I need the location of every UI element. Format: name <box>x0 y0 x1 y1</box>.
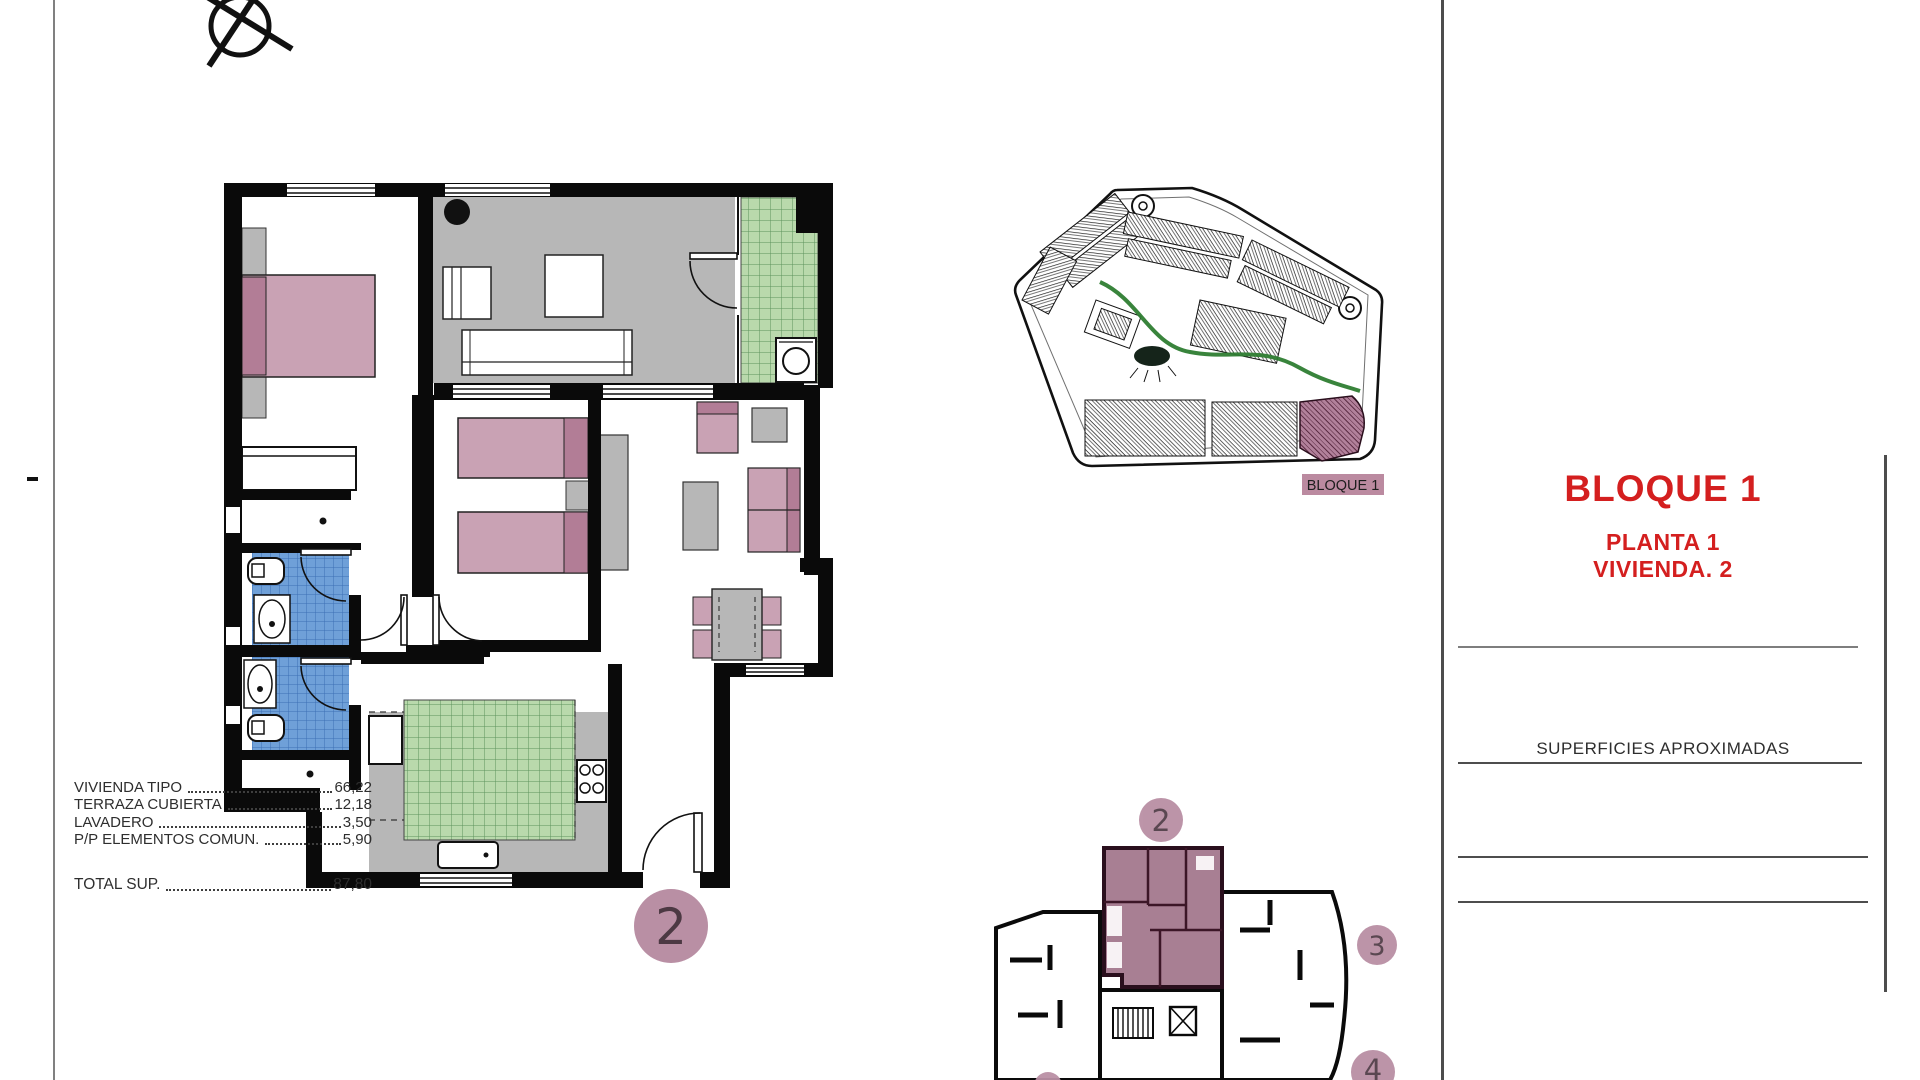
svg-text:3: 3 <box>1368 931 1385 962</box>
surface-value: 5,90 <box>343 831 372 848</box>
living-cabinet <box>600 435 628 570</box>
edge-tick <box>27 477 38 481</box>
highlighted-block <box>1300 396 1364 461</box>
surface-label: P/P ELEMENTOS COMUN. <box>74 831 259 848</box>
svg-text:2: 2 <box>1151 804 1170 839</box>
surface-label: LAVADERO <box>74 814 153 831</box>
surface-value: 3,50 <box>343 814 372 831</box>
fridge <box>369 716 402 764</box>
dot-leader <box>228 808 333 810</box>
dining-chair <box>762 630 781 658</box>
elevator-icon <box>1170 1007 1196 1035</box>
dining-chair <box>693 597 712 625</box>
site-plan-label: BLOQUE 1 <box>1302 474 1384 495</box>
surface-row: TERRAZA CUBIERTA 12,18 <box>74 796 372 814</box>
plaza-feature <box>1134 346 1170 366</box>
surfaces-rule-top <box>1458 762 1862 764</box>
key-plan: 2 3 4 <box>996 798 1397 1080</box>
site-plan: BLOQUE 1 <box>1015 188 1384 495</box>
dining-chair <box>693 630 712 658</box>
surface-value: 12,18 <box>334 796 372 813</box>
surface-row: VIVIENDA TIPO 66,22 <box>74 778 372 796</box>
block-title: BLOQUE 1 <box>1443 468 1883 510</box>
dining-chair <box>762 597 781 625</box>
kitchen-floor <box>404 700 575 840</box>
surface-value: 66,22 <box>334 779 372 796</box>
surface-row: LAVADERO 3,50 <box>74 813 372 831</box>
svg-text:4: 4 <box>1364 1053 1382 1080</box>
stairs-icon <box>1113 1008 1153 1038</box>
svg-text:BLOQUE 1: BLOQUE 1 <box>1307 478 1380 494</box>
divider-rule <box>1458 646 1858 648</box>
wardrobe <box>242 447 356 490</box>
terrace-table <box>545 255 603 317</box>
title-panel: BLOQUE 1 PLANTA 1 VIVIENDA. 2 <box>1443 0 1883 1080</box>
dot-leader <box>166 889 331 891</box>
total-value: 87,80 <box>333 876 372 894</box>
total-label: TOTAL SUP. <box>74 876 160 894</box>
surfaces-header: SUPERFICIES APROXIMADAS <box>1443 739 1883 759</box>
floor-label: PLANTA 1 <box>1443 529 1883 556</box>
dwelling-label: VIVIENDA. 2 <box>1443 556 1883 583</box>
dot-leader <box>265 843 340 845</box>
compass-icon <box>196 0 292 66</box>
unit-number-badge: 2 <box>634 889 708 963</box>
terrace-table-round <box>444 199 470 225</box>
terrace-bench <box>462 330 632 375</box>
coffee-table <box>683 482 718 550</box>
dot-leader <box>159 826 340 828</box>
surfaces-table: VIVIENDA TIPO 66,22 TERRAZA CUBIERTA 12,… <box>74 778 372 848</box>
surface-label: VIVIENDA TIPO <box>74 779 182 796</box>
total-row: TOTAL SUP. 87,80 <box>74 874 372 894</box>
surfaces-rule-bottom <box>1458 901 1868 903</box>
dot-leader <box>188 791 332 793</box>
frame-left-border <box>53 0 55 1080</box>
terrace-chair <box>443 267 491 319</box>
surface-row: P/P ELEMENTOS COMUN. 5,90 <box>74 831 372 849</box>
architectural-plan-sheet: 2 <box>0 0 1920 1080</box>
svg-text:2: 2 <box>655 898 687 956</box>
frame-right-border <box>1884 455 1887 992</box>
kitchen-sink <box>438 842 498 868</box>
side-table <box>752 408 787 442</box>
surfaces-rule-mid <box>1458 856 1868 858</box>
surface-label: TERRAZA CUBIERTA <box>74 796 222 813</box>
